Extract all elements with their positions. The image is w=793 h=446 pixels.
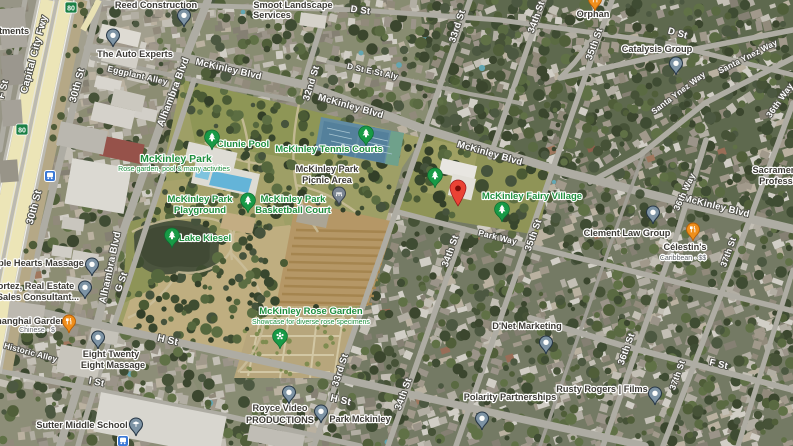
svg-text:Caribbean · $$: Caribbean · $$: [660, 255, 706, 262]
svg-text:McKinley Park: McKinley Park: [296, 164, 360, 174]
svg-text:Rose garden, pool & many activ: Rose garden, pool & many activities: [118, 166, 230, 173]
svg-text:Catalysis Group: Catalysis Group: [622, 44, 693, 54]
svg-text:The Auto Experts: The Auto Experts: [97, 49, 173, 59]
svg-text:Clunie Pool: Clunie Pool: [217, 139, 269, 150]
svg-text:80: 80: [18, 128, 26, 135]
svg-text:Professio: Professio: [759, 176, 793, 186]
svg-text:Célestin's: Célestin's: [663, 242, 706, 252]
svg-text:Eight Massage: Eight Massage: [81, 360, 145, 370]
svg-text:Services: Services: [253, 10, 291, 20]
svg-text:Playground: Playground: [174, 205, 226, 216]
svg-text:D'Net Marketing: D'Net Marketing: [492, 321, 562, 331]
svg-text:McKinley Park: McKinley Park: [140, 153, 212, 165]
svg-text:Basketball Court: Basketball Court: [255, 205, 331, 216]
svg-text:McKinley Rose Garden: McKinley Rose Garden: [259, 306, 363, 317]
svg-text:Orphan: Orphan: [577, 9, 610, 19]
svg-text:ple Hearts Massage: ple Hearts Massage: [0, 258, 84, 268]
svg-text:Sacrament: Sacrament: [753, 165, 793, 175]
svg-text:McKinley Park: McKinley Park: [168, 194, 234, 205]
svg-text:Sales Consultant...: Sales Consultant...: [0, 292, 79, 302]
svg-text:Lake Kiesel: Lake Kiesel: [179, 233, 231, 244]
svg-text:Clement Law Group: Clement Law Group: [584, 228, 671, 238]
svg-text:Reed Construction: Reed Construction: [115, 0, 198, 10]
svg-text:McKinley Fairy Village: McKinley Fairy Village: [482, 191, 582, 202]
svg-text:Sutter Middle School: Sutter Middle School: [36, 420, 127, 430]
svg-text:Shanghai Garden: Shanghai Garden: [0, 316, 66, 326]
svg-text:Royce Video: Royce Video: [253, 403, 308, 413]
svg-text:ortez, Real Estate: ortez, Real Estate: [0, 281, 74, 291]
svg-text:McKinley Park: McKinley Park: [261, 194, 327, 205]
svg-text:Showcase for diverse rose spec: Showcase for diverse rose specimens: [252, 319, 370, 326]
svg-text:Smoot Landscape: Smoot Landscape: [253, 0, 332, 10]
svg-text:McKinley Tennis Courts: McKinley Tennis Courts: [275, 144, 383, 155]
svg-text:Picnic Area: Picnic Area: [302, 175, 353, 185]
svg-text:Chinese · $: Chinese · $: [19, 327, 55, 334]
svg-text:PRODUCTIONS: PRODUCTIONS: [246, 415, 314, 425]
svg-text:Rusty Rogers | Films: Rusty Rogers | Films: [556, 384, 647, 394]
svg-text:tments: tments: [0, 26, 29, 36]
svg-text:Eight Twenty: Eight Twenty: [83, 349, 140, 359]
svg-text:80: 80: [67, 6, 75, 13]
svg-text:Polarity Partnerships: Polarity Partnerships: [464, 392, 556, 402]
svg-text:Park Mckinley: Park Mckinley: [329, 414, 391, 424]
